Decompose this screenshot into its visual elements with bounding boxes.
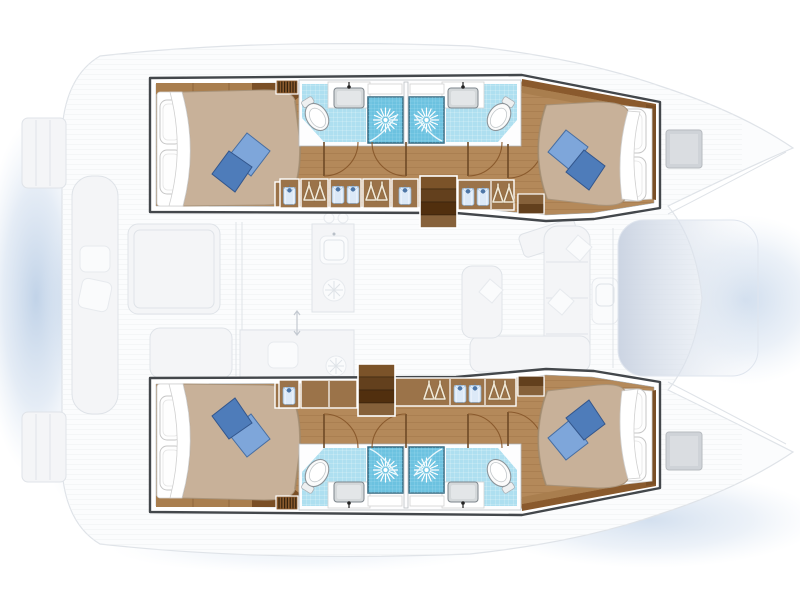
catamaran-floorplan <box>0 0 800 600</box>
cockpit-cushion <box>77 277 113 313</box>
companionway-stairs <box>358 364 395 416</box>
coachroof-ghost <box>618 220 758 376</box>
galley-sink-icon <box>268 342 298 368</box>
starboard-hull <box>150 364 660 515</box>
stove-burners-icon <box>324 213 334 223</box>
cockpit-seat <box>150 328 232 378</box>
cockpit-cushion <box>80 246 110 272</box>
starboard-storage-row <box>279 378 516 408</box>
port-hull <box>150 75 660 228</box>
deck-plan-svg <box>0 0 800 600</box>
saloon-sofa <box>470 336 590 372</box>
cockpit-table <box>128 224 220 314</box>
transom-steps <box>22 412 66 482</box>
stove-burners-icon <box>338 213 348 223</box>
port-storage-row <box>280 179 514 210</box>
companionway-stairs <box>420 176 457 228</box>
transom-steps <box>22 118 66 188</box>
saloon-chaise <box>462 266 502 338</box>
